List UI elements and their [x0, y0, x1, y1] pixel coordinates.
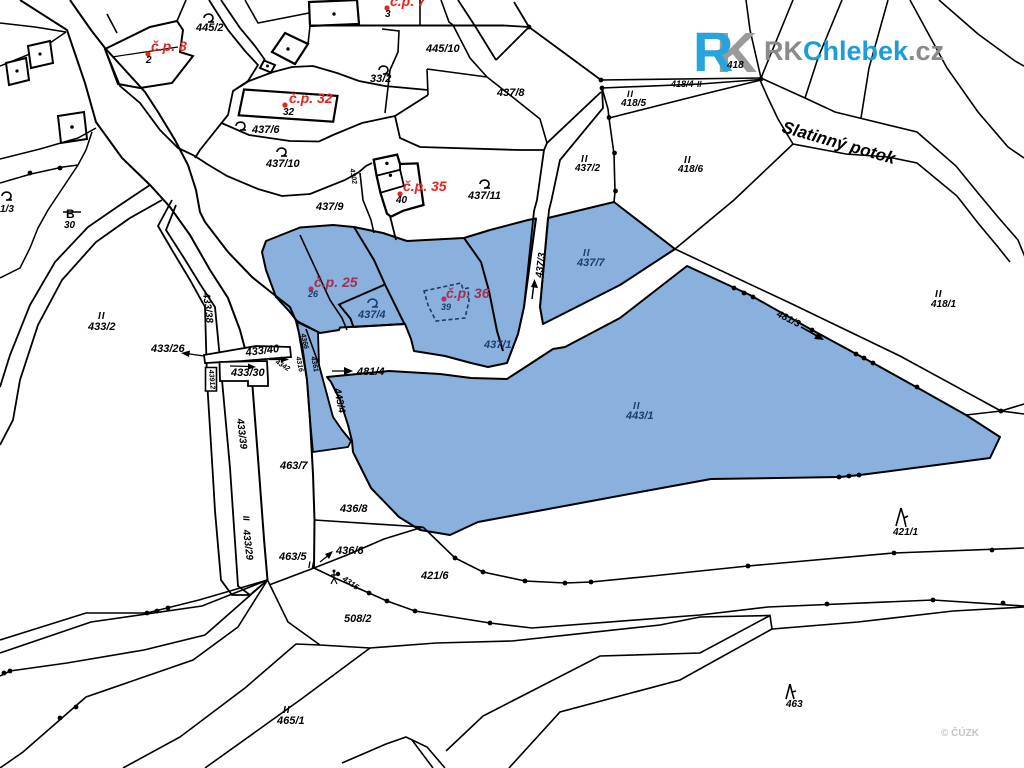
svg-text:26: 26	[307, 289, 319, 299]
svg-text:437/4: 437/4	[357, 309, 386, 321]
svg-text:40: 40	[395, 195, 408, 206]
svg-text:421/1: 421/1	[892, 527, 918, 538]
svg-text:437/8: 437/8	[496, 87, 525, 99]
svg-text:č.p. 35: č.p. 35	[403, 178, 447, 194]
svg-text:R: R	[693, 20, 733, 83]
svg-text:437/1: 437/1	[483, 339, 512, 351]
svg-text:418/5: 418/5	[620, 98, 646, 109]
svg-text:463: 463	[785, 699, 803, 710]
svg-text:39: 39	[441, 302, 451, 312]
svg-text:443/1: 443/1	[625, 410, 654, 422]
svg-text:č.p. 32: č.p. 32	[289, 90, 333, 106]
svg-text:437/11: 437/11	[467, 190, 501, 202]
svg-text:418/4: 418/4	[670, 79, 694, 89]
svg-text:32: 32	[283, 107, 295, 118]
svg-text:421/6: 421/6	[420, 570, 449, 582]
svg-text:č.p. 25: č.p. 25	[314, 274, 358, 290]
svg-text:418/6: 418/6	[677, 164, 703, 175]
svg-text:433/30: 433/30	[230, 367, 266, 379]
svg-text:č.p. 7: č.p. 7	[390, 0, 427, 9]
svg-text:445/2: 445/2	[195, 22, 224, 34]
svg-text:II: II	[308, 560, 315, 570]
svg-text:463/5: 463/5	[278, 551, 307, 563]
svg-text:465/1: 465/1	[276, 715, 305, 727]
svg-text:č.p. 8: č.p. 8	[151, 38, 187, 54]
svg-text:437/9: 437/9	[315, 201, 344, 213]
svg-text:2: 2	[145, 55, 152, 66]
svg-text:436/6: 436/6	[335, 545, 364, 557]
svg-text:418/1: 418/1	[930, 299, 956, 310]
svg-text:433/26: 433/26	[150, 343, 186, 355]
svg-text:433/2: 433/2	[87, 321, 116, 333]
svg-text:437/10: 437/10	[265, 158, 301, 170]
svg-text:418: 418	[726, 60, 744, 71]
svg-text:30: 30	[64, 220, 76, 231]
svg-text:č.p. 36: č.p. 36	[446, 285, 490, 301]
svg-text:3: 3	[385, 9, 391, 20]
svg-text:RKChlebek.cz: RKChlebek.cz	[764, 36, 944, 66]
svg-text:437/7: 437/7	[576, 257, 605, 269]
svg-text:445/10: 445/10	[425, 43, 461, 55]
svg-text:508/2: 508/2	[344, 613, 372, 625]
svg-text:1/3: 1/3	[0, 204, 14, 215]
svg-text:463/7: 463/7	[279, 460, 308, 472]
svg-text:436/8: 436/8	[339, 503, 368, 515]
svg-text:437/6: 437/6	[251, 124, 280, 136]
svg-text:481/4: 481/4	[356, 366, 385, 378]
svg-text:© ČÚZK: © ČÚZK	[941, 726, 980, 739]
svg-text:437/2: 437/2	[574, 163, 600, 174]
svg-text:B: B	[66, 207, 75, 221]
svg-text:33/2: 33/2	[370, 73, 391, 85]
